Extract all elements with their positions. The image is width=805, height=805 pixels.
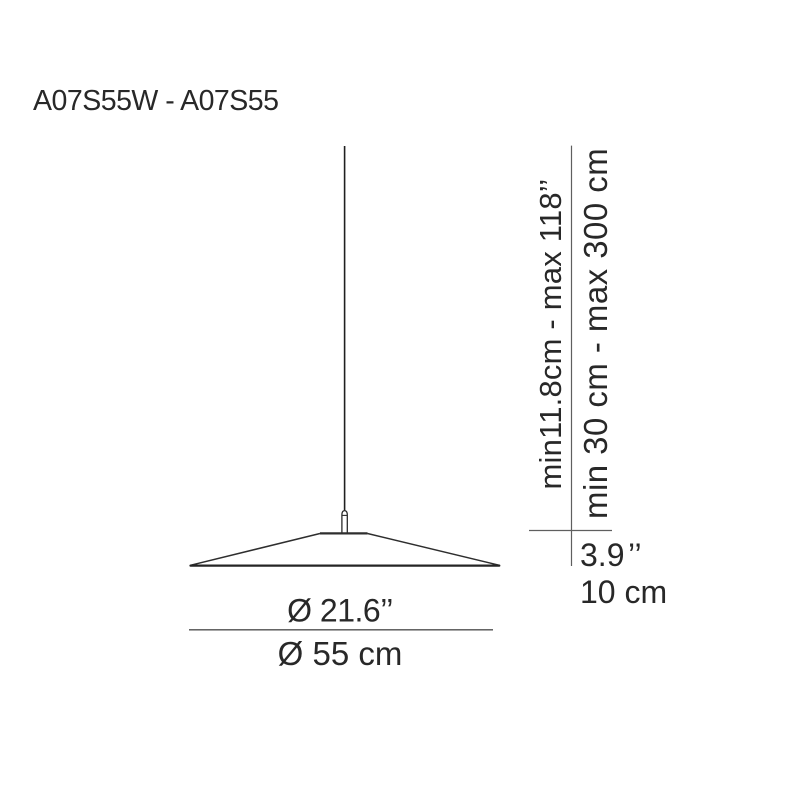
- svg-text:min 30 cm - max 300 cm: min 30 cm - max 300 cm: [577, 148, 614, 519]
- svg-text:10 cm: 10 cm: [580, 574, 667, 610]
- svg-text:Ø 55 cm: Ø 55 cm: [278, 635, 403, 672]
- svg-text:min11.8cm - max 118’’: min11.8cm - max 118’’: [533, 179, 568, 490]
- svg-text:Ø 21.6’’: Ø 21.6’’: [287, 593, 393, 629]
- svg-text:A07S55W - A07S55: A07S55W - A07S55: [33, 85, 279, 117]
- svg-text:3.9’’: 3.9’’: [580, 537, 642, 573]
